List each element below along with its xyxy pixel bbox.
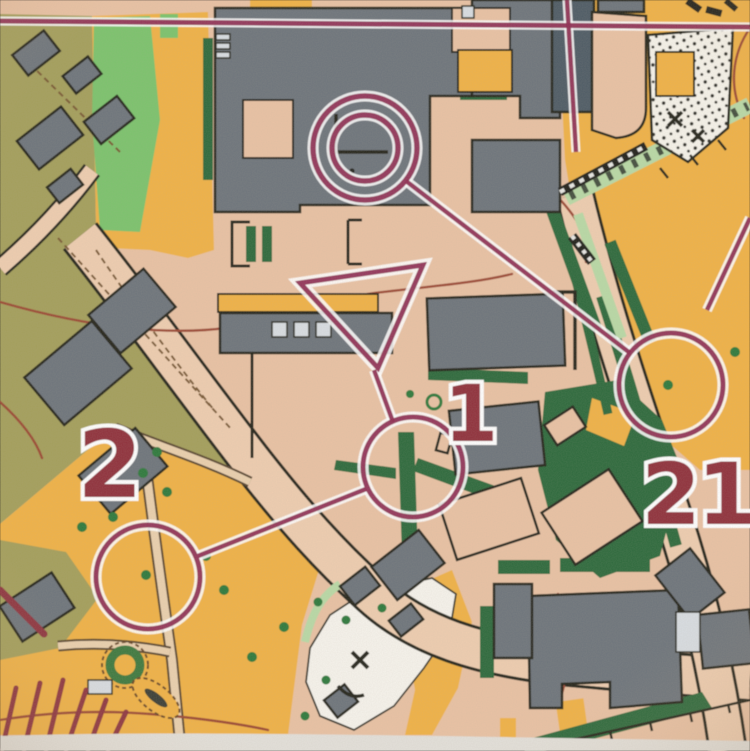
map-photo: 1 2 21 <box>0 0 750 751</box>
vignette <box>0 0 750 751</box>
orienteering-map: 1 2 21 <box>0 0 750 751</box>
